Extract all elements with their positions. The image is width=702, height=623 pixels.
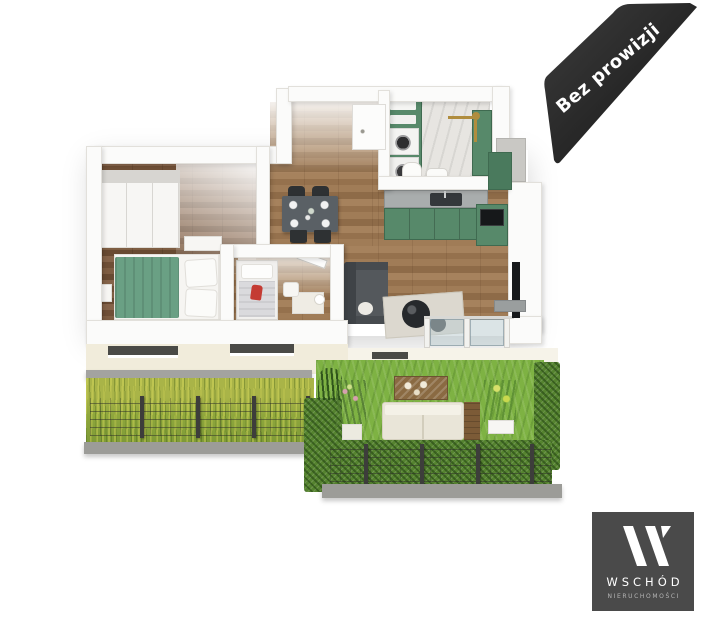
railing-post <box>504 318 510 348</box>
bed-blanket <box>115 257 179 318</box>
glass-panel <box>470 319 504 346</box>
garden-curb-bottom-left <box>84 442 316 454</box>
logo-subtitle: NIERUCHOMOŚCI <box>606 593 680 600</box>
red-toy <box>250 284 263 300</box>
railing-post <box>464 318 470 348</box>
corner-post <box>506 316 542 344</box>
sofa-backrest <box>344 262 356 324</box>
dining-chair <box>314 230 331 245</box>
glass-panel <box>430 319 464 346</box>
kitchen-corner-unit <box>476 204 508 246</box>
kitchen-cabinets <box>384 208 488 240</box>
planter-box <box>342 424 362 440</box>
wall-left <box>86 146 102 344</box>
fence-mesh-left <box>90 398 310 436</box>
kitchen-faucet <box>444 191 446 198</box>
listing-render: Bez prowizji WSCHÓD NIERUCHOMOŚCI <box>0 0 702 623</box>
window-sill <box>108 355 178 358</box>
fence-post <box>140 396 144 438</box>
towel-shelf <box>390 101 416 110</box>
kitchen-counter <box>384 190 488 240</box>
washing-machine <box>387 128 419 155</box>
railing-post <box>424 318 430 348</box>
double-bed <box>114 254 222 320</box>
sofa <box>344 262 388 324</box>
kids-chair <box>283 282 299 297</box>
tv-console <box>494 300 526 312</box>
kitchen-tall-unit <box>488 152 512 190</box>
bed-pillow <box>184 288 217 318</box>
outdoor-sofa-seam <box>422 415 424 439</box>
window-sill <box>230 353 294 356</box>
parapet-wall <box>86 320 348 346</box>
bed-pillow <box>184 258 218 288</box>
wall-kids-room-top <box>220 244 344 258</box>
sofa-pillow <box>358 302 373 315</box>
garden-curb-top <box>86 370 312 378</box>
facade-window <box>372 352 408 359</box>
outdoor-deck-side <box>464 402 480 440</box>
shower-pipe <box>474 120 477 142</box>
sofa-armrest <box>356 262 388 270</box>
outdoor-table <box>394 376 448 400</box>
shower-head <box>472 112 480 120</box>
yellow-plant <box>484 380 516 422</box>
cooktop <box>480 209 504 226</box>
fence-post <box>196 396 200 438</box>
bedroom-dresser <box>184 236 222 251</box>
outdoor-sofa <box>382 402 464 440</box>
entry-door <box>352 104 386 150</box>
wall-top-main <box>288 86 502 102</box>
logo-name: WSCHÓD <box>602 575 683 589</box>
wschod-monogram-icon <box>611 526 675 566</box>
wardrobe-top <box>100 170 180 183</box>
kids-pillow <box>241 264 273 279</box>
dining-table <box>282 196 338 232</box>
facade-window <box>108 346 178 355</box>
kids-bed <box>236 260 278 320</box>
fence-post <box>252 396 256 438</box>
towel-shelf <box>390 115 416 124</box>
flower-plant <box>336 380 366 426</box>
planter-box <box>488 420 514 434</box>
kitchen-sink <box>430 193 462 206</box>
garden-curb-bottom-right <box>322 484 562 498</box>
facade-window <box>230 344 294 353</box>
wall-bedroom-hall <box>256 146 270 254</box>
dining-chair <box>290 230 307 245</box>
agency-logo: WSCHÓD NIERUCHOMOŚCI <box>592 512 694 611</box>
desk-lamp <box>314 294 325 305</box>
outdoor-sofa-back <box>385 405 461 415</box>
